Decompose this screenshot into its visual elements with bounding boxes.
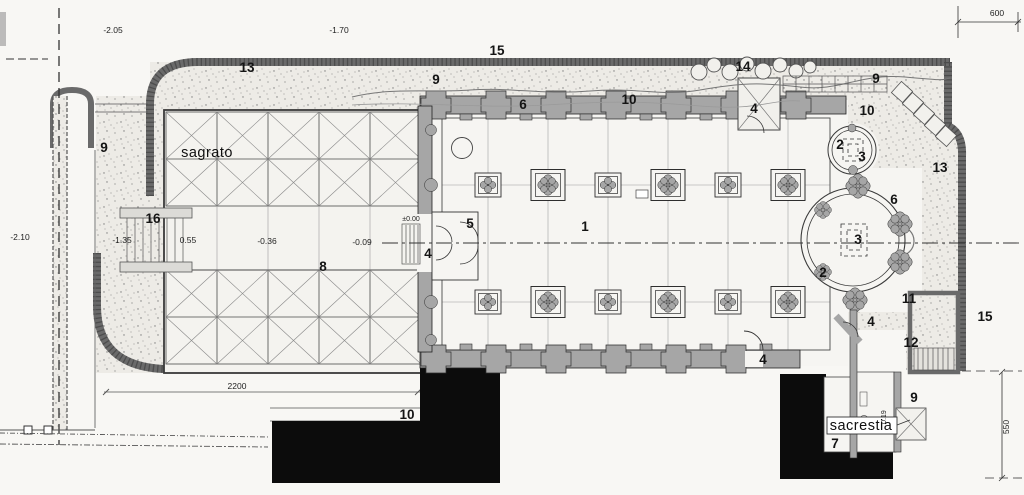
- scan-smudge: [0, 12, 6, 46]
- key-number: 10: [621, 92, 636, 107]
- key-number: 9: [100, 140, 108, 155]
- site-plan-page: -2.05 -1.70 600 -2.10 15 13 9 6 10 14 9 …: [0, 0, 1024, 495]
- key-number: 13: [932, 160, 948, 175]
- room-label-sagrato: sagrato: [181, 145, 233, 161]
- key-number: 16: [145, 211, 161, 226]
- north-porch: [738, 78, 780, 133]
- key-number: 4: [750, 101, 758, 116]
- key-number: 4: [424, 246, 432, 261]
- dimension-label: 600: [990, 8, 1004, 18]
- key-number: 2: [819, 265, 827, 280]
- key-number: 1: [581, 219, 589, 234]
- key-number: 9: [872, 71, 880, 86]
- level-label: -2.10: [10, 232, 30, 242]
- key-number: 15: [489, 43, 505, 58]
- level-label: ±0.00: [402, 216, 420, 223]
- church-floor: [424, 100, 848, 366]
- level-label: -1.70: [329, 25, 349, 35]
- key-number: 13: [239, 60, 255, 75]
- key-number: 6: [519, 97, 527, 112]
- corridor: [857, 372, 894, 452]
- key-number: 5: [466, 216, 474, 231]
- dimension-label: 2200: [228, 381, 247, 391]
- key-number: 11: [902, 291, 917, 306]
- key-number: 7: [831, 436, 839, 451]
- level-label: 0.55: [180, 235, 197, 245]
- level-label: -0.36: [257, 236, 277, 246]
- key-number: 2: [836, 137, 844, 152]
- key-number: 15: [977, 309, 993, 324]
- baptismal-font: [452, 138, 473, 159]
- key-number: 8: [319, 259, 327, 274]
- key-number: 14: [735, 59, 751, 74]
- room-label-sacrestia: sacrestia: [830, 418, 893, 434]
- walled-courtyard: [910, 293, 958, 372]
- key-number: 4: [867, 314, 875, 329]
- key-number: 12: [903, 335, 918, 350]
- key-number: 10: [399, 407, 414, 422]
- level-label: -2.05: [103, 25, 123, 35]
- key-number: 3: [858, 149, 866, 164]
- level-label: -1.35: [112, 235, 132, 245]
- site-plan-drawing: -2.05 -1.70 600 -2.10 15 13 9 6 10 14 9 …: [0, 0, 1024, 495]
- dimension-label-rotated: 550: [1001, 420, 1011, 434]
- key-number: 10: [859, 103, 874, 118]
- key-number: 9: [432, 72, 440, 87]
- key-number: 9: [910, 390, 918, 405]
- floor-marker: [636, 190, 648, 198]
- key-number: 3: [854, 232, 862, 247]
- key-number: 6: [890, 192, 898, 207]
- key-number: 4: [759, 352, 767, 367]
- level-label: -0.09: [352, 237, 372, 247]
